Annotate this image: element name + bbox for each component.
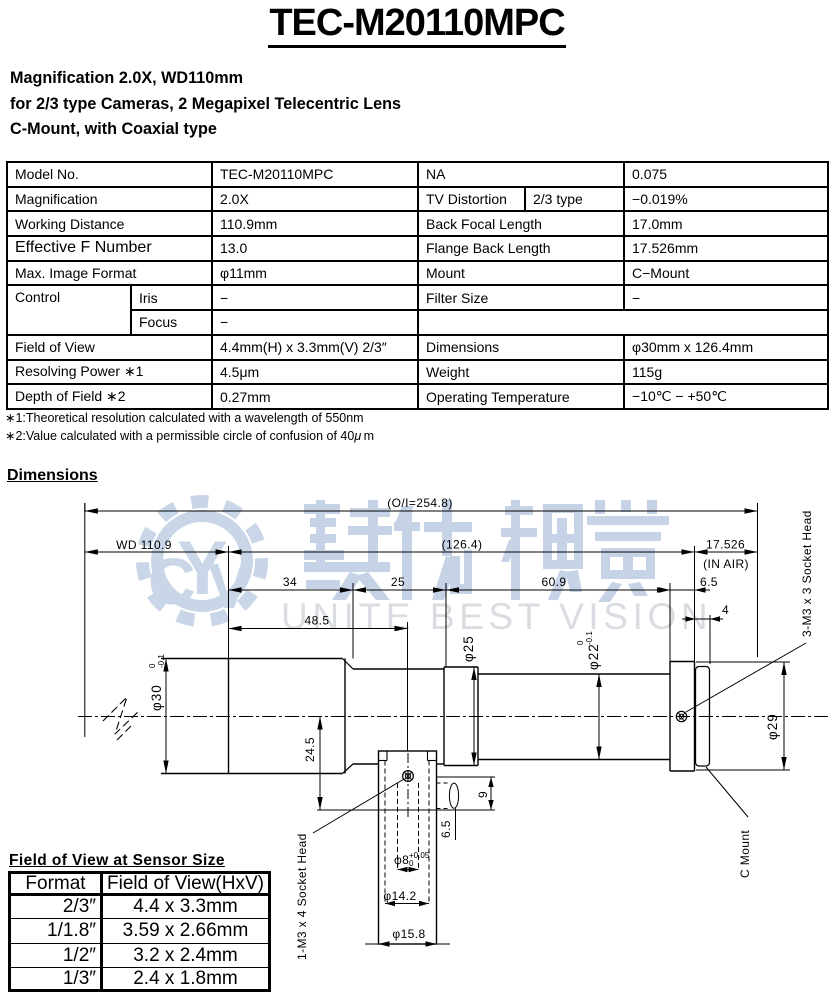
svg-text:WD 110.9: WD 110.9 — [116, 538, 172, 552]
svg-text:-0.1: -0.1 — [585, 631, 594, 645]
svg-text:C Mount: C Mount — [738, 830, 752, 878]
svg-text:(IN AIR): (IN AIR) — [703, 557, 749, 571]
svg-text:φ22: φ22 — [586, 643, 601, 670]
svg-text:3-M3 x 3 Socket Head: 3-M3 x 3 Socket Head — [800, 510, 814, 637]
svg-text:φ29: φ29 — [765, 713, 780, 740]
svg-text:4: 4 — [722, 603, 729, 617]
svg-text:0: 0 — [148, 663, 157, 668]
svg-text:9: 9 — [476, 791, 490, 798]
svg-text:φ8: φ8 — [394, 853, 409, 867]
svg-text:48.5: 48.5 — [305, 614, 330, 628]
svg-text:V: V — [208, 550, 251, 622]
svg-text:φ15.8: φ15.8 — [392, 927, 425, 941]
svg-text:34: 34 — [283, 575, 297, 589]
svg-text:φ30: φ30 — [149, 684, 164, 711]
svg-text:φ14.2: φ14.2 — [383, 889, 416, 903]
svg-text:60.9: 60.9 — [542, 575, 567, 589]
svg-text:UNITE BEST VISION: UNITE BEST VISION — [281, 596, 712, 637]
svg-text:(O/I=254.8): (O/I=254.8) — [387, 496, 452, 510]
svg-text:-0.1: -0.1 — [157, 654, 166, 668]
svg-text:1-M3 x 4 Socket Head: 1-M3 x 4 Socket Head — [295, 833, 309, 960]
svg-text:6.5: 6.5 — [439, 820, 453, 838]
svg-text:0: 0 — [576, 640, 585, 645]
svg-text:25: 25 — [391, 575, 405, 589]
svg-text:0: 0 — [409, 859, 414, 868]
svg-text:17.526: 17.526 — [706, 538, 745, 552]
svg-text:φ25: φ25 — [461, 635, 476, 662]
svg-text:(126.4): (126.4) — [442, 538, 483, 552]
svg-text:24.5: 24.5 — [303, 737, 317, 762]
svg-text:6.5: 6.5 — [700, 575, 718, 589]
